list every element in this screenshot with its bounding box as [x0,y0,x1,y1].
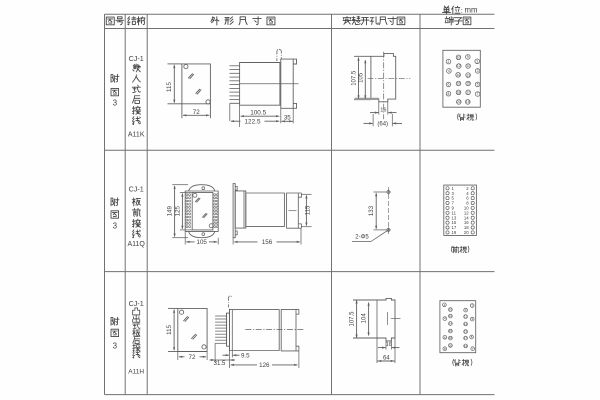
svg-text:A11H: A11H [128,369,144,376]
svg-text:3: 3 [477,69,479,73]
svg-text:18: 18 [449,336,453,340]
svg-text::: : [461,6,463,15]
svg-text:104: 104 [362,313,368,324]
svg-text:9: 9 [467,55,469,59]
svg-text:156: 156 [262,239,273,246]
svg-text:12: 12 [457,64,461,68]
svg-text:105: 105 [358,72,364,83]
svg-text:2: 2 [448,60,450,64]
svg-text:10: 10 [457,56,461,60]
svg-text:13: 13 [466,73,470,77]
svg-text:11: 11 [464,315,467,319]
svg-text:100.5: 100.5 [250,109,266,116]
svg-text:6: 6 [448,83,450,87]
svg-text:122.5: 122.5 [245,119,261,126]
svg-text:CJ-1: CJ-1 [129,54,144,63]
svg-text:20: 20 [464,230,469,235]
svg-text:115: 115 [166,324,173,334]
svg-text:72: 72 [189,354,196,361]
svg-text:115: 115 [166,82,173,92]
svg-text:14: 14 [449,322,453,326]
svg-text:64: 64 [383,356,390,362]
svg-text:20: 20 [449,344,453,348]
svg-text:16: 16 [386,342,392,348]
svg-text:5: 5 [477,83,479,87]
svg-text:19: 19 [466,100,470,104]
svg-text:72: 72 [193,109,200,116]
svg-text:133: 133 [368,205,375,216]
svg-text:16: 16 [449,329,453,333]
svg-text:149: 149 [167,205,174,216]
svg-text:1: 1 [476,60,478,64]
svg-text:11: 11 [466,64,470,68]
svg-text:3: 3 [113,221,118,230]
svg-text:CJ-1: CJ-1 [129,299,144,308]
svg-text:17: 17 [464,336,468,340]
svg-text:19: 19 [464,344,468,348]
svg-text:A11Q: A11Q [128,241,146,248]
svg-text:115: 115 [305,205,311,215]
svg-text:9.5: 9.5 [241,352,250,359]
svg-text:3: 3 [113,342,118,351]
svg-text:18: 18 [457,91,461,95]
svg-text:15: 15 [466,82,470,86]
svg-text:16: 16 [380,107,386,113]
svg-text:105: 105 [197,239,208,246]
svg-text:15: 15 [464,330,468,334]
svg-text:14: 14 [456,73,460,77]
svg-text:35: 35 [284,115,291,122]
svg-text:10: 10 [449,308,453,312]
svg-text:7: 7 [477,92,479,96]
svg-text:107.5: 107.5 [350,311,356,327]
svg-text:13: 13 [464,322,468,326]
svg-text:2-Φ5: 2-Φ5 [355,235,369,241]
svg-text:mm: mm [465,6,478,15]
svg-text:4: 4 [448,69,450,73]
svg-text:19: 19 [452,230,457,235]
svg-text:107.5: 107.5 [351,70,357,86]
svg-text:16: 16 [457,82,461,86]
svg-text:126: 126 [259,362,270,369]
svg-text:12: 12 [449,314,453,318]
svg-text:3: 3 [113,99,118,108]
svg-text:CJ-1: CJ-1 [129,184,144,193]
svg-text:125: 125 [174,205,181,216]
svg-text:(64): (64) [377,122,388,128]
svg-text:8: 8 [448,92,450,96]
svg-text:17: 17 [466,91,470,95]
svg-text:31.5: 31.5 [214,361,226,367]
svg-text:A11K: A11K [128,132,145,139]
svg-text:20: 20 [457,100,461,104]
